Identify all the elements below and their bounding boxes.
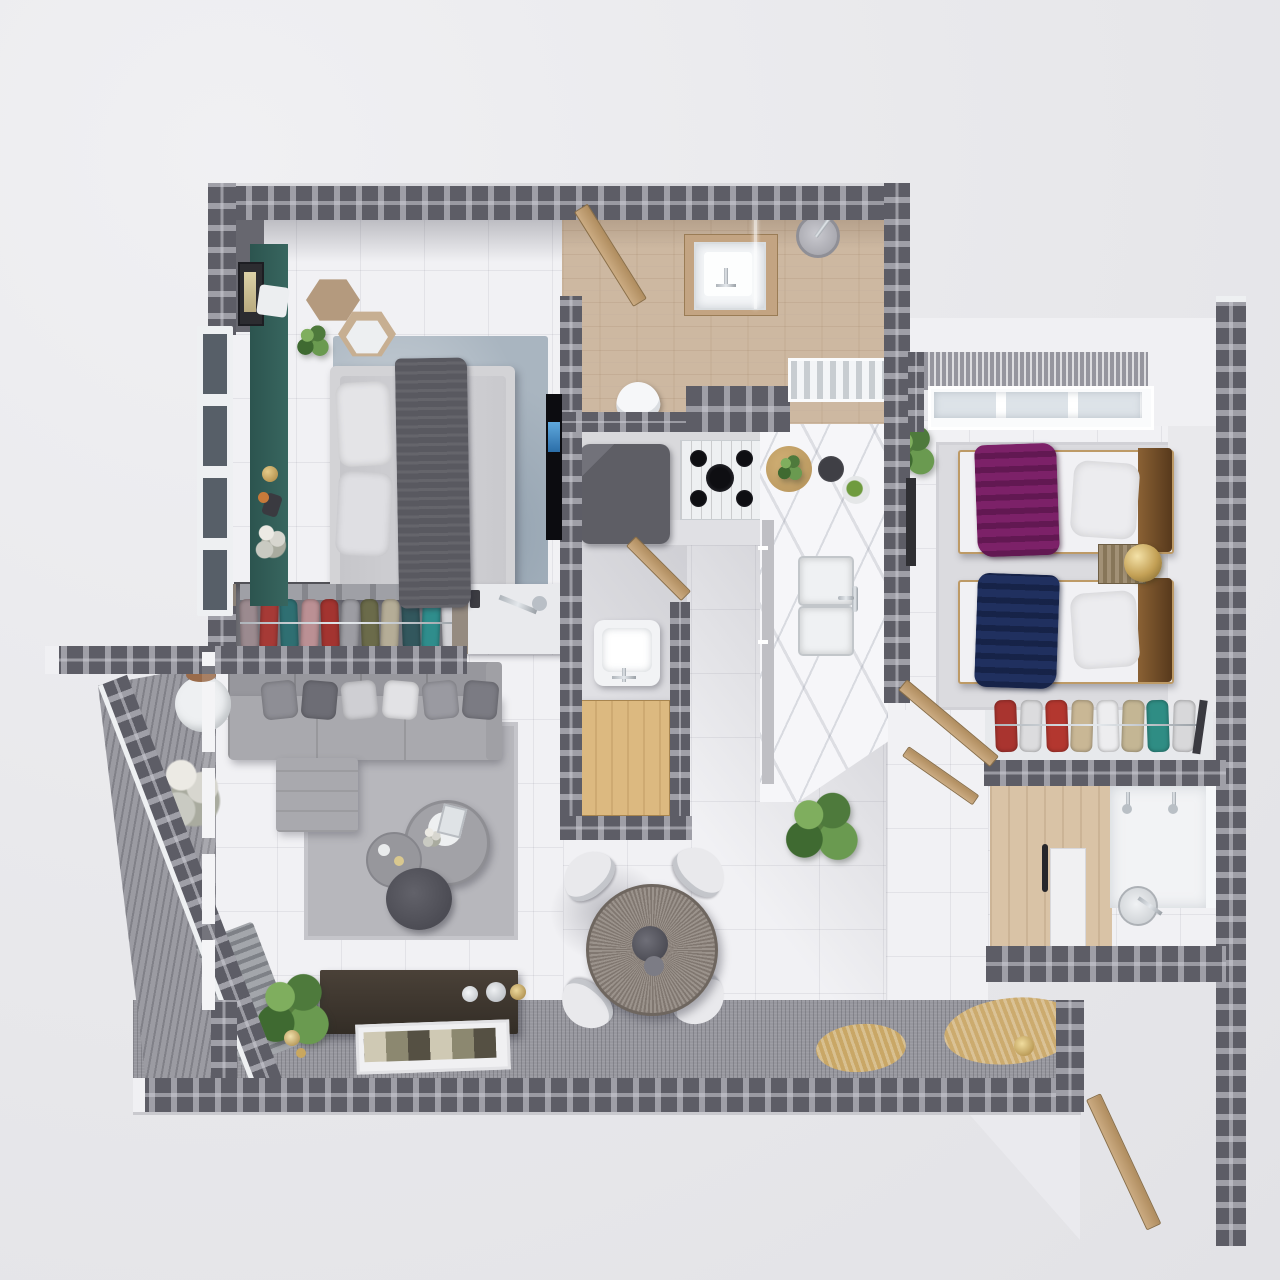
headboard-a xyxy=(1138,448,1172,552)
sofa-pillow xyxy=(340,679,379,720)
sofa-pillow xyxy=(301,680,339,721)
wall-central-spine xyxy=(884,183,910,703)
bedroom-plant xyxy=(294,322,332,360)
powder-wood-cabinet xyxy=(578,700,670,816)
master-throw-blanket xyxy=(395,357,471,608)
counter-cabinet-edge xyxy=(762,520,774,784)
bath-sink-bowl xyxy=(704,252,752,296)
bedroom2-window-glass xyxy=(934,392,1142,418)
vanity-faucet-base xyxy=(1168,804,1178,814)
kitchen-faucet-spout xyxy=(838,596,854,600)
bathroom2-door xyxy=(1050,848,1086,954)
stove-burner xyxy=(690,450,707,467)
cutting-board-greens xyxy=(776,452,804,484)
hanging-garment xyxy=(380,599,400,652)
sofa-pillow xyxy=(260,679,299,720)
stove-burner xyxy=(736,490,753,507)
desk-lamp-head xyxy=(532,596,547,611)
herb-bowl-light xyxy=(842,476,870,504)
purple-throw xyxy=(974,443,1060,558)
console-glass xyxy=(462,986,478,1002)
bedroom2-wall-cap xyxy=(884,318,1218,354)
navy-throw xyxy=(974,573,1060,690)
terrace-edge-east xyxy=(1056,1000,1084,1112)
floor-plan-render xyxy=(0,0,1280,1280)
fridge xyxy=(580,444,670,544)
hanging-garment xyxy=(320,599,340,652)
wall-powder-south xyxy=(560,816,692,840)
decor-gold-cup xyxy=(262,466,278,482)
vanity-faucet-base xyxy=(1122,804,1132,814)
powder-faucet-handles xyxy=(612,676,636,679)
hanging-garment xyxy=(1019,700,1043,753)
wall-wardrobe1-south xyxy=(45,646,467,674)
sofa-pillow xyxy=(461,680,499,721)
hanging-garment xyxy=(994,700,1018,753)
magazine-spread xyxy=(364,1028,497,1063)
wall-powder-east xyxy=(670,602,690,838)
wall-mirror-strip xyxy=(906,478,916,566)
hanging-garment xyxy=(239,599,259,652)
hanging-garment xyxy=(1146,700,1170,753)
wardrobe2-clothes-row xyxy=(995,698,1195,754)
wall-cap-bottom-left xyxy=(133,1078,145,1112)
bath-faucet-handle xyxy=(716,284,736,287)
wall-kitchen-bar xyxy=(686,386,790,432)
coffee-cup xyxy=(378,844,390,856)
decor-tray xyxy=(256,284,290,318)
wall-left-bottom-stub xyxy=(211,1000,237,1084)
pouf-ottoman xyxy=(386,868,452,930)
hanging-garment xyxy=(259,599,279,652)
powder-faucet xyxy=(622,668,626,682)
master-window-glass xyxy=(203,332,227,610)
sofa-pillow xyxy=(421,679,460,720)
wardrobe1-rod xyxy=(240,622,460,624)
bedroom2-wall-right xyxy=(1148,352,1218,426)
wall-kitchen-north-thin xyxy=(560,412,692,432)
wall-bedroom2-corner xyxy=(908,352,924,432)
cabinet-handle xyxy=(758,640,768,644)
door-handle xyxy=(1042,844,1048,892)
console-gold-dish xyxy=(510,984,526,1000)
wall-bathroom2-south xyxy=(986,946,1226,982)
wall-powder-west xyxy=(560,586,582,838)
wall-cap-west-end xyxy=(45,646,59,674)
sofa-pillow xyxy=(381,680,419,721)
wall-top xyxy=(208,183,908,220)
master-bed-pillow xyxy=(335,381,393,468)
wall-master-east xyxy=(560,296,582,586)
bedroom2-wall-band xyxy=(1168,420,1218,712)
pillow-a xyxy=(1069,460,1140,540)
wardrobe2-rod xyxy=(995,724,1199,726)
kitchen-pass-grille xyxy=(788,358,890,402)
hanging-garment xyxy=(1045,700,1069,753)
hanging-garment xyxy=(300,599,320,652)
sofa-pillow-row xyxy=(262,676,498,724)
candle-holder xyxy=(296,1048,306,1058)
candle-holder xyxy=(284,1030,300,1046)
stove-burner xyxy=(690,490,707,507)
glass-divider xyxy=(754,205,757,309)
tv-picture xyxy=(548,422,560,452)
sofa-chaise xyxy=(276,758,358,832)
pillow-b xyxy=(1069,590,1140,670)
centerpiece-small xyxy=(644,956,664,976)
hanging-garment xyxy=(1121,700,1145,753)
wall-art-print xyxy=(244,272,256,312)
white-flowers xyxy=(248,514,294,568)
tv-screen xyxy=(546,394,562,540)
hanging-garment xyxy=(1172,700,1196,753)
hanging-garment xyxy=(340,599,360,652)
herb-bowl-dark xyxy=(818,456,844,482)
stove-burner xyxy=(736,450,753,467)
console-glass xyxy=(486,982,506,1002)
hanging-garment xyxy=(1096,700,1120,753)
entrance-door xyxy=(1086,1093,1161,1230)
desk-item xyxy=(470,590,480,608)
bedroom2-curtain xyxy=(922,352,1160,390)
hanging-garment xyxy=(1070,700,1094,753)
decor-candle-orange xyxy=(258,492,269,503)
hanging-garment xyxy=(360,599,380,652)
gold-sphere-lamp xyxy=(1124,544,1162,582)
master-bed-pillow xyxy=(335,471,393,558)
wall-wardrobe2-south xyxy=(984,760,1226,786)
coffee-cup xyxy=(394,856,404,866)
kitchen-plant xyxy=(778,786,866,868)
headboard-b xyxy=(1138,578,1172,682)
wall-bottom xyxy=(133,1078,1081,1115)
stove-burner-center xyxy=(706,464,734,492)
cabinet-handle xyxy=(758,546,768,550)
sheer-curtains xyxy=(202,652,215,1010)
terrace-gold-lantern xyxy=(1014,1036,1034,1056)
wall-left-upper xyxy=(208,183,236,335)
powder-sink-bowl xyxy=(602,628,652,672)
kitchen-sink-basin xyxy=(798,606,854,656)
hanging-garment xyxy=(279,599,299,652)
